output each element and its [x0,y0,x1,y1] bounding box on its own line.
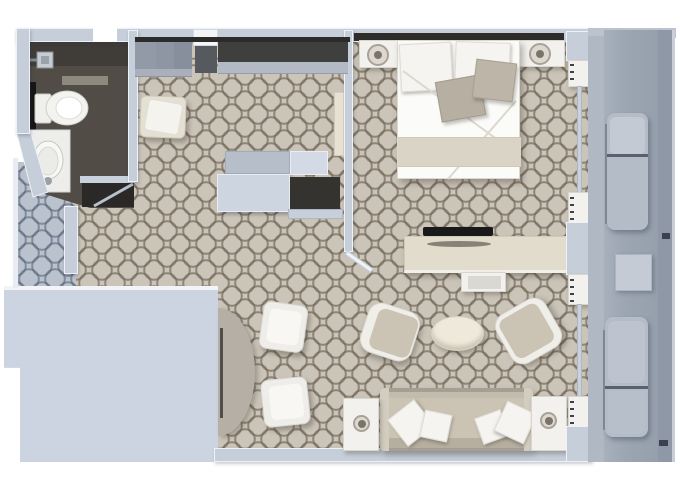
door-hinge-ticks [570,279,574,302]
dining-chair-top [258,300,309,354]
console-stool [461,272,506,292]
railing-bracket-top [662,233,670,239]
living-window-glass [577,304,582,397]
balcony-threshold [588,36,604,462]
lounger-upper [607,113,648,230]
wardrobe-left-doors [135,42,192,71]
lounger-upper-backrest [610,117,645,155]
side-table-left [343,398,379,451]
door-hinge-ticks [570,64,574,85]
lounger-lower-rail-left [603,330,605,430]
corridor-right-wall [64,206,78,274]
dresser-right-block [290,151,328,175]
corridor-left-wall [13,158,18,288]
wardrobe-right-recess [218,42,348,64]
wardrobe-right-shelf [218,62,348,74]
coffee-table-oval [431,316,484,351]
ottoman-stool [139,95,186,139]
dresser-upper-block [225,151,290,174]
balcony-door-bedroom-top [568,60,589,87]
lounger-lower-fold [605,386,648,389]
lounger-lower-footrest [608,391,645,434]
bed-runner-band [398,137,521,167]
lounger-upper-rail-left [605,124,607,224]
top-wall-notch [93,26,117,42]
dining-table-edge [220,328,223,418]
balcony-door-living-bottom [568,396,589,427]
dining-chair-cushion [266,308,302,346]
storage-recess-shelf [288,209,343,219]
balcony-railing [658,30,675,462]
lounger-lower-rail-right [648,330,650,430]
lounger-lower [605,317,648,437]
side-table-right-lamp [540,412,557,429]
floorplan-canvas [0,0,680,486]
wardrobe-door-leaf [334,92,344,156]
lamp-finial [536,50,544,58]
railing-bracket-bottom [659,440,668,446]
side-table-right [531,396,567,451]
console-stool-top [468,276,501,289]
bedroom-window-glass [577,86,582,193]
toilet-seat [56,97,82,119]
dining-chair-cushion [268,383,304,420]
lounger-lower-backrest [608,321,645,383]
shower-head-inner [41,56,49,64]
sofa [380,388,533,451]
tv-shadow [427,241,491,247]
balcony-door-bedroom-bottom [568,192,589,223]
bed-pillow-gray-right [472,59,517,103]
bathroom-door-shelf [80,176,134,183]
lamp-finial [358,420,366,428]
storage-recess-dark [290,177,340,209]
nightstand-right [518,40,565,67]
lamp-finial [545,417,553,425]
sofa-pillow-2 [419,409,452,442]
lounger-upper-rail-right [648,124,650,224]
lounger-upper-fold [607,154,648,157]
flat-tv [423,227,493,236]
dining-chair-bottom [260,376,312,429]
double-bed [397,40,520,179]
left-wall [16,28,30,134]
wardrobe-niche-shadow [195,46,217,73]
balcony-door-living-top [568,274,589,305]
dresser-lower-block [217,174,290,212]
balcony-table [615,254,652,291]
wardrobe-left-shelf [135,69,192,77]
door-hinge-ticks [570,401,574,424]
side-table-left-lamp [353,415,370,432]
nightstand-left [359,40,398,68]
lamp-finial [374,51,382,59]
ottoman-cushion [143,98,183,136]
nightstand-right-lamp [529,43,551,65]
nightstand-left-lamp [367,44,389,66]
bathroom-counter [62,76,108,85]
door-hinge-ticks [570,197,574,220]
